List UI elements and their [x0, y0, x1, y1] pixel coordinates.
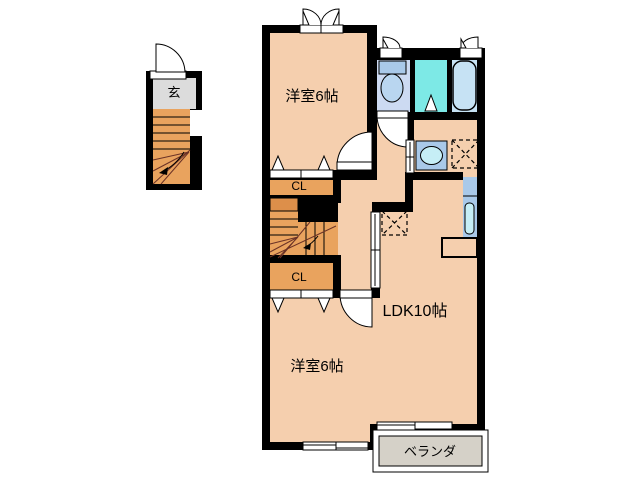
toilet-door-leaf [377, 111, 408, 118]
kitchen-sink-icon [465, 203, 474, 234]
bedroom-top-door-leaf [337, 162, 372, 170]
wall-notch [190, 110, 202, 136]
wall-bath-divider [447, 48, 452, 112]
washbasin-bowl-icon [421, 147, 443, 165]
closet-top-label: CL [291, 179, 307, 193]
closet-bottom-label: CL [291, 270, 307, 284]
entrance-unit [146, 44, 202, 190]
bath-window-sill [460, 48, 482, 58]
floor-plan-drawing: 玄 洋室6帖 CL CL 洋室6帖 LDK10帖 ベランダ [0, 0, 640, 480]
bathtub-room-floor [452, 60, 477, 112]
wall-washroom-bottom [408, 172, 463, 180]
wall-washroom-left [408, 120, 414, 142]
kitchen-counter [442, 238, 477, 257]
entrance-label: 玄 [167, 85, 180, 100]
floor-plan: 玄 洋室6帖 CL CL 洋室6帖 LDK10帖 ベランダ [0, 0, 640, 480]
toilet-window-sill [380, 48, 402, 58]
wall-bath-bottom [408, 112, 485, 120]
ldk-label: LDK10帖 [383, 302, 448, 320]
wall-toilet-right [410, 48, 415, 112]
wall-left [262, 25, 270, 450]
veranda-label: ベランダ [404, 444, 456, 459]
stair-landing [270, 198, 298, 211]
wall-stairs-block [298, 198, 338, 222]
entrance-door-swing-icon [156, 44, 185, 72]
wall-stairs-bottom [262, 255, 341, 263]
wall-right [477, 48, 485, 432]
bedroom-bottom-door-leaf [340, 290, 372, 298]
toilet-tank-icon [379, 61, 406, 74]
bedroom-top-label: 洋室6帖 [285, 88, 338, 105]
bedroom-bottom-label: 洋室6帖 [290, 358, 343, 375]
toilet-bowl-icon [381, 74, 403, 102]
